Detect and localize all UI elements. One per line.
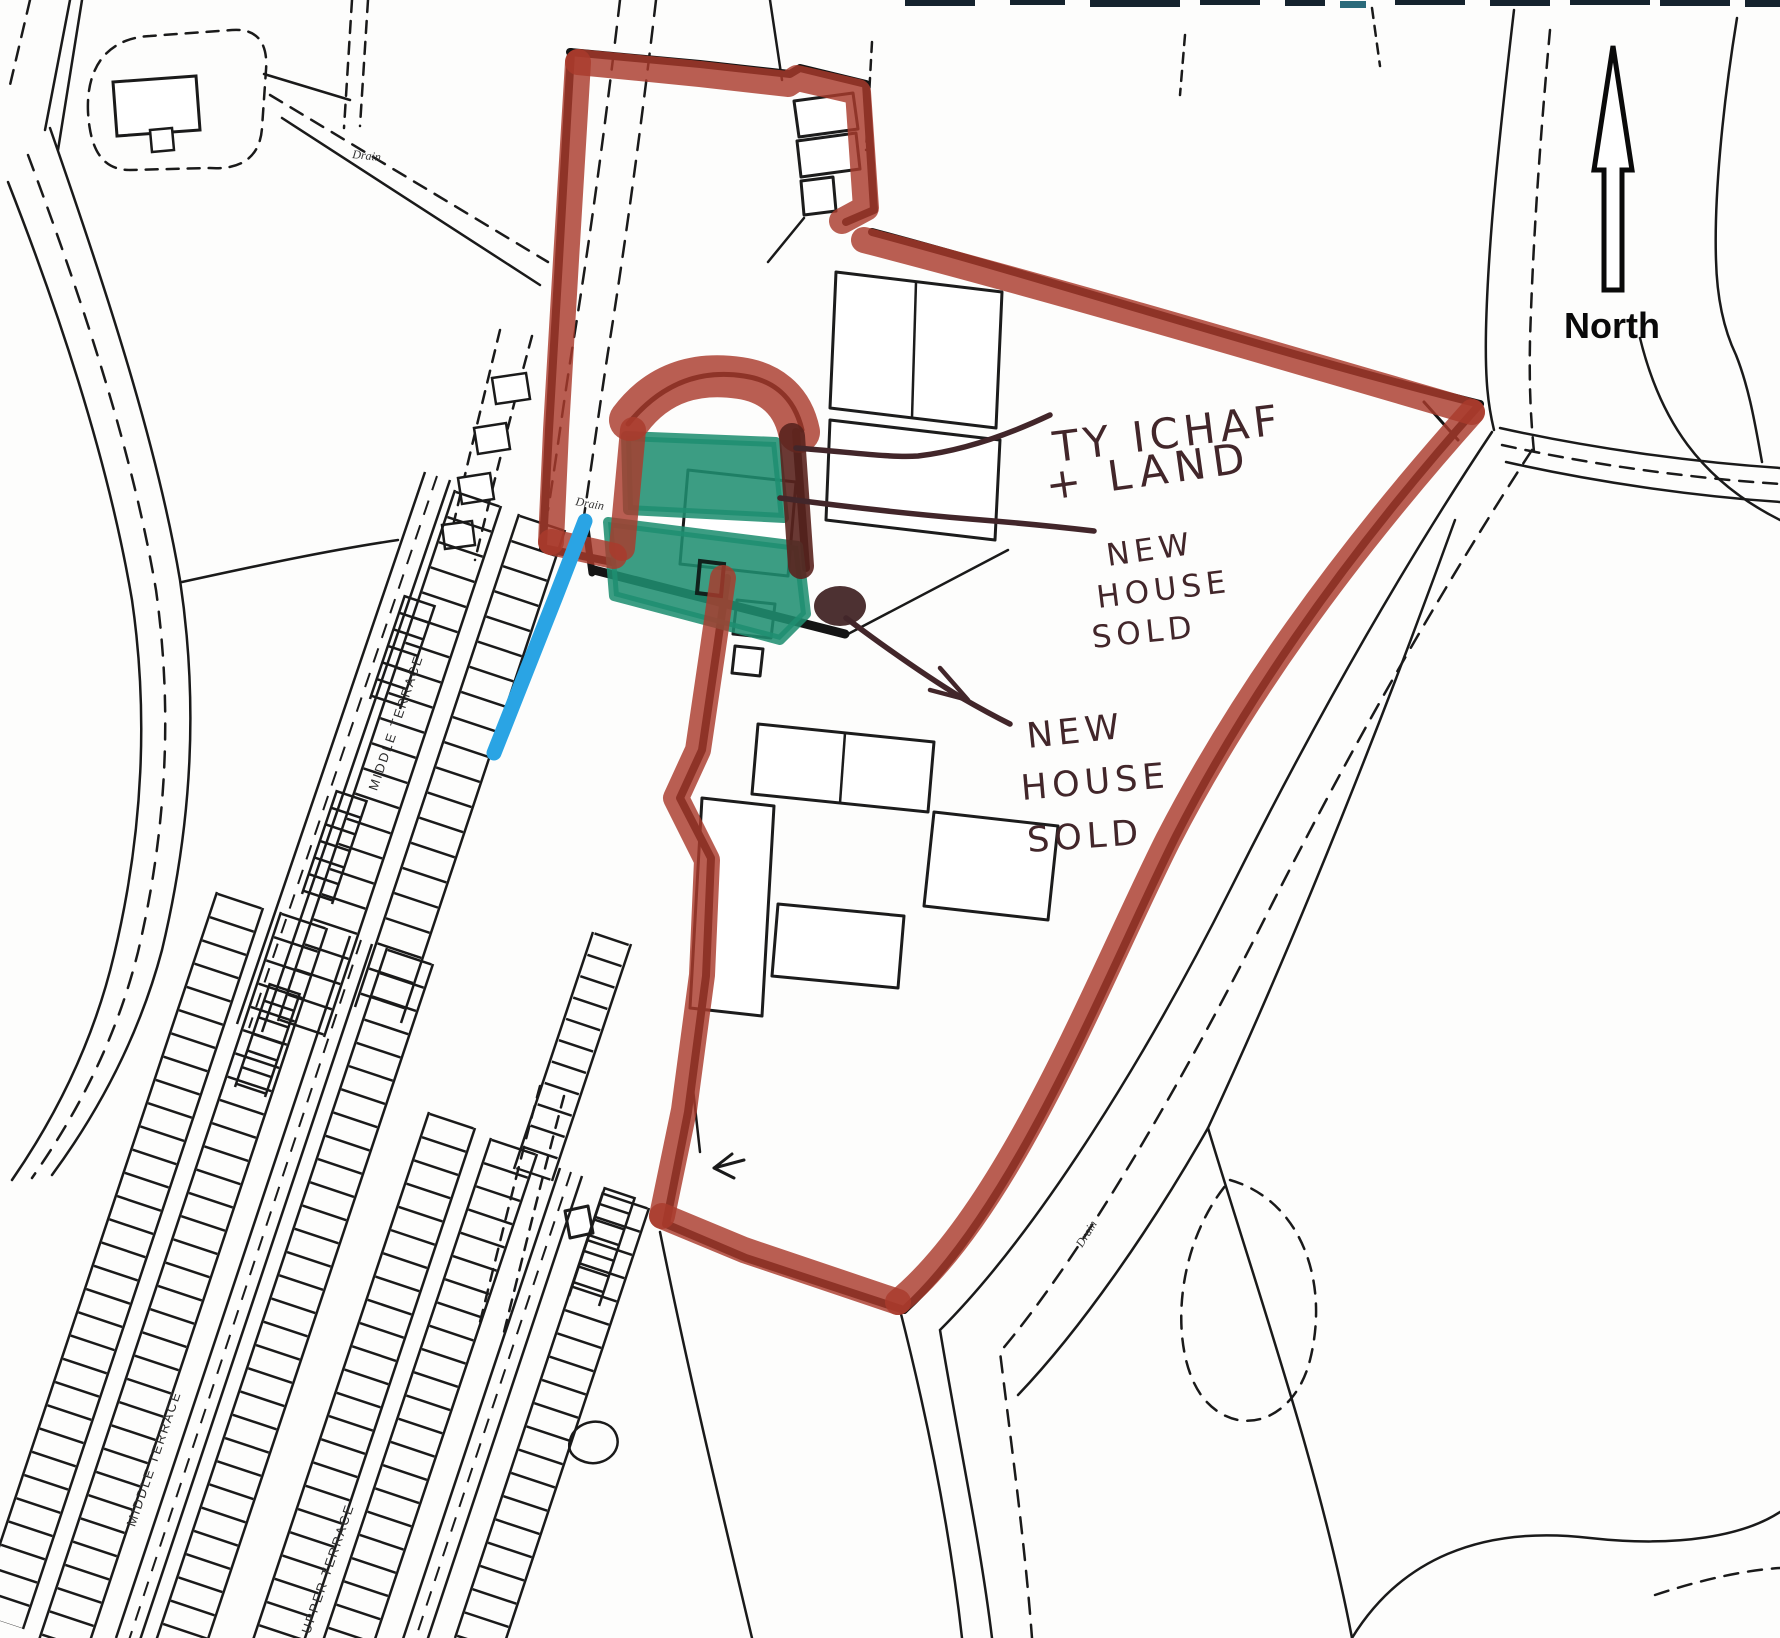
- annotation-line: NEW: [1104, 526, 1197, 574]
- north-label: North: [1564, 305, 1660, 346]
- drain-label: Drain: [1072, 1218, 1100, 1251]
- annotation-line: HOUSE: [1019, 756, 1171, 809]
- building-outline: [113, 76, 200, 136]
- red-site-boundary: [551, 62, 1472, 1302]
- leader-line-new-house-2: [846, 618, 1010, 724]
- drain-label: Drain: [351, 147, 382, 164]
- annotation-new-house-sold-2: NEW HOUSE SOLD: [1019, 707, 1171, 861]
- scanned-site-plan: TY ICHAF + LAND NEW HOUSE SOLD NEW HOUSE…: [0, 0, 1780, 1638]
- drain-label: Drain: [573, 494, 605, 513]
- ink-blob: [814, 586, 866, 626]
- annotation-line: NEW: [1025, 707, 1127, 757]
- blue-access-line: [494, 521, 585, 753]
- north-arrow-icon: [1594, 46, 1632, 290]
- flow-arrow-icon: [714, 1154, 744, 1178]
- annotation-ty-uchaf-land: TY ICHAF + LAND: [1043, 395, 1286, 510]
- annotation-new-house-sold-1: NEW HOUSE SOLD: [1090, 526, 1233, 656]
- terraced-houses: [0, 472, 649, 1638]
- street-label-middle-terrace-upper: MIDDLE TERRACE: [365, 653, 426, 793]
- annotation-line: SOLD: [1026, 813, 1145, 861]
- annotation-line: SOLD: [1090, 609, 1198, 656]
- north-arrow: North: [1564, 46, 1660, 346]
- scan-artifacts: [905, 0, 1780, 8]
